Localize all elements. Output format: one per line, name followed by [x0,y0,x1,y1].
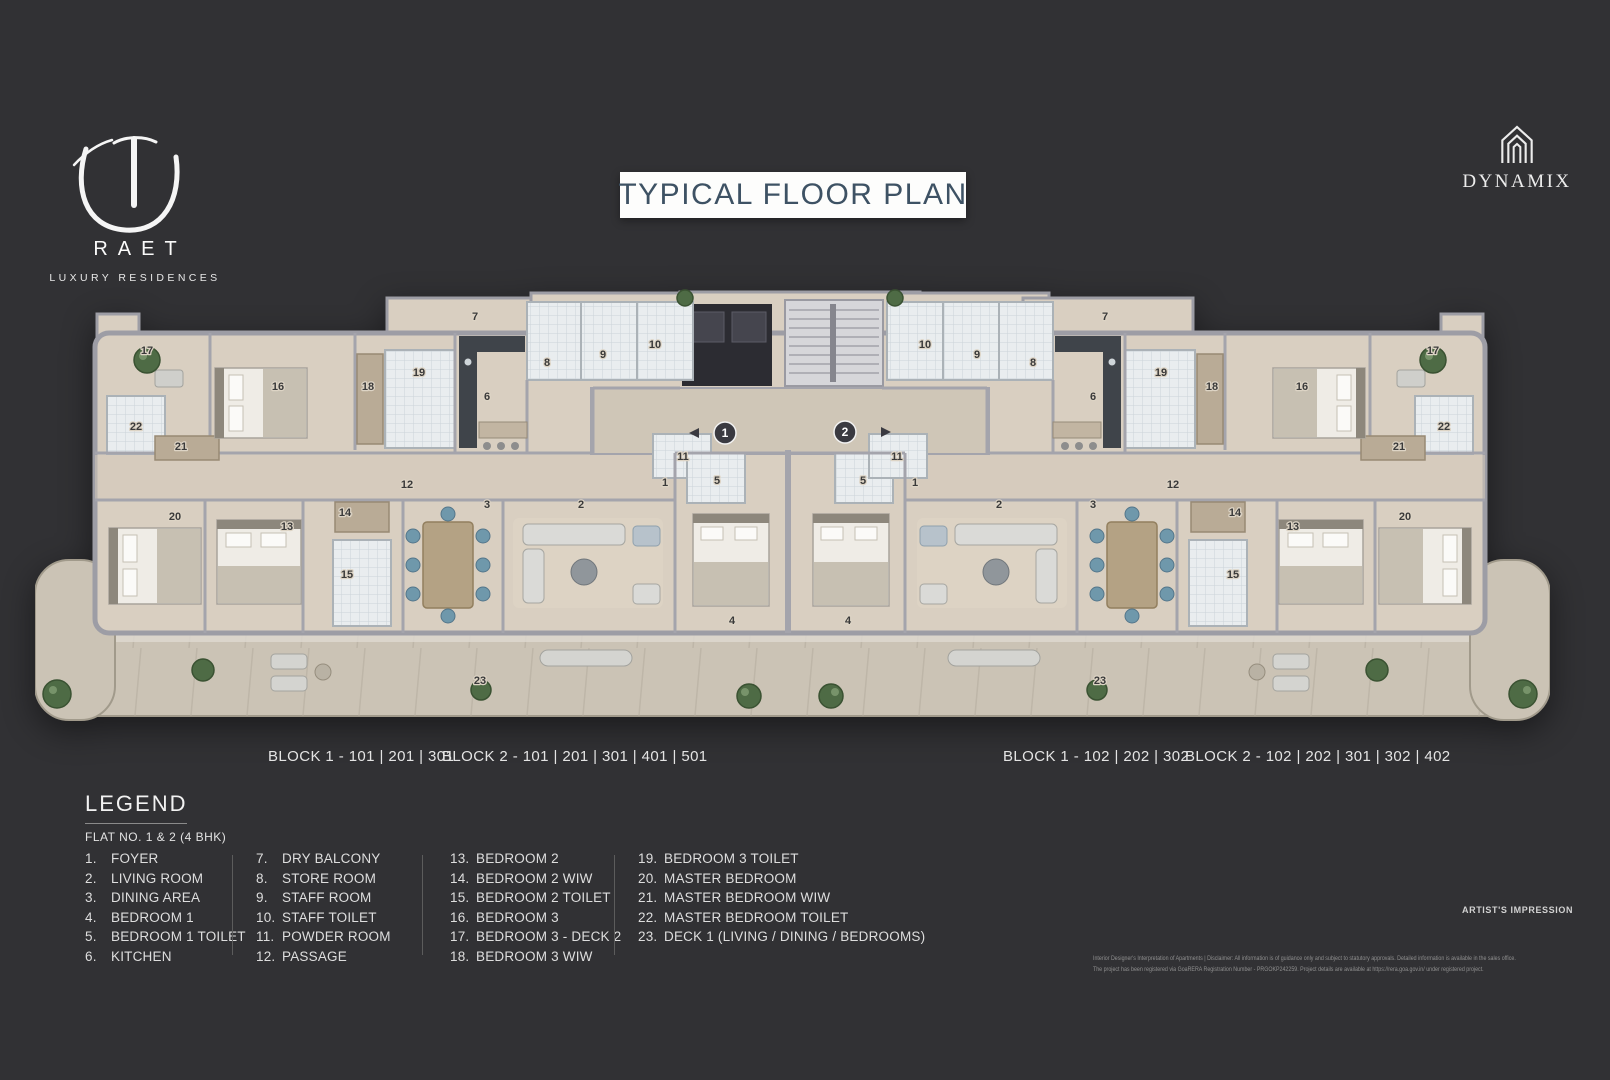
room-number-label: 15 [1227,569,1239,581]
legend-item: 12.PASSAGE [256,947,391,967]
room-number-label: 14 [339,507,352,519]
room-number-label: 20 [1399,511,1411,523]
legend-divider [422,855,423,955]
room-number-label: 22 [1438,421,1450,433]
legend-item: 16.BEDROOM 3 [450,908,621,928]
room-number-label: 12 [401,479,413,491]
legend-item: 18.BEDROOM 3 WIW [450,947,621,967]
block-label-1: BLOCK 1 - 101 | 201 | 301 [268,748,454,765]
room-number-label: 4 [845,615,852,627]
passage-left [95,455,675,499]
legend-item: 13.BEDROOM 2 [450,849,621,869]
room-number-label: 5 [860,475,866,487]
room-number-label: 23 [1094,675,1106,687]
legend-divider [232,855,233,955]
room-number-label: 16 [272,381,284,393]
legend-item: 1.FOYER [85,849,246,869]
room-number-label: 8 [1030,357,1036,369]
unit-2-number: 2 [842,425,849,439]
page-title: TYPICAL FLOOR PLAN [620,172,966,218]
room-number-label: 14 [1229,507,1242,519]
passage-right [905,455,1485,499]
room-number-label: 16 [1296,381,1308,393]
raet-logo-mark [70,135,195,235]
block-label-2: BLOCK 2 - 101 | 201 | 301 | 401 | 501 [442,748,708,765]
room-number-label: 21 [175,441,187,453]
legend-item: 15.BEDROOM 2 TOILET [450,888,621,908]
unit-1-number: 1 [722,426,729,440]
room-number-label: 19 [413,367,425,379]
legend-item: 22.MASTER BEDROOM TOILET [638,908,925,928]
legend-item: 20.MASTER BEDROOM [638,869,925,889]
artists-impression-note: ARTIST'S IMPRESSION [1462,905,1573,915]
legend-column-3: 13.BEDROOM 214.BEDROOM 2 WIW15.BEDROOM 2… [450,849,621,967]
dynamix-logo-icon [1493,118,1541,168]
room-number-label: 11 [891,451,903,463]
room-number-label: 3 [1090,499,1096,511]
room-number-label: 8 [544,357,550,369]
room-number-label: 17 [141,345,153,357]
room-number-label: 9 [974,349,980,361]
legend-item: 3.DINING AREA [85,888,246,908]
room-number-label: 2 [578,499,584,511]
legend-item: 7.DRY BALCONY [256,849,391,869]
block-label-3: BLOCK 1 - 102 | 202 | 302 [1003,748,1189,765]
legend-item: 23.DECK 1 (LIVING / DINING / BEDROOMS) [638,927,925,947]
legend-column-1: 1.FOYER2.LIVING ROOM3.DINING AREA4.BEDRO… [85,849,246,967]
page-title-text: TYPICAL FLOOR PLAN [618,178,967,212]
legend-divider [614,855,615,955]
room-number-label: 1 [662,477,668,489]
brand-name: RAET [40,238,230,261]
room-number-label: 10 [649,339,661,351]
room-number-label: 18 [362,381,374,393]
developer-name: DYNAMIX [1452,171,1582,193]
room-number-label: 3 [484,499,490,511]
room-number-label: 19 [1155,367,1167,379]
room-number-label: 15 [341,569,353,581]
room-number-label: 20 [169,511,181,523]
room-number-label: 1 [912,477,918,489]
legend-subheading: FLAT NO. 1 & 2 (4 BHK) [85,830,226,844]
legend-item: 21.MASTER BEDROOM WIW [638,888,925,908]
room-number-label: 17 [1427,345,1439,357]
legend-item: 17.BEDROOM 3 - DECK 2 [450,927,621,947]
legend-item: 9.STAFF ROOM [256,888,391,908]
legend-item: 8.STORE ROOM [256,869,391,889]
legend-item: 6.KITCHEN [85,947,246,967]
legend-item: 11.POWDER ROOM [256,927,391,947]
legend-item: 19.BEDROOM 3 TOILET [638,849,925,869]
room-number-label: 7 [1102,311,1108,323]
legend-column-4: 19.BEDROOM 3 TOILET20.MASTER BEDROOM21.M… [638,849,925,947]
room-number-label: 6 [1090,391,1096,403]
disclaimer-line-2: The project has been registered via GoaR… [1093,964,1530,975]
room-number-label: 13 [281,521,293,533]
room-number-label: 11 [677,451,689,463]
legend-item: 5.BEDROOM 1 TOILET [85,927,246,947]
room-number-label: 21 [1393,441,1405,453]
dynamix-logo: DYNAMIX [1452,118,1582,193]
room-number-label: 18 [1206,381,1218,393]
room-number-label: 4 [729,615,736,627]
room-number-label: 12 [1167,479,1179,491]
disclaimer-line-1: Interior Designer's Interpretation of Ap… [1093,953,1530,964]
legend-item: 14.BEDROOM 2 WIW [450,869,621,889]
room-number-label: 6 [484,391,490,403]
room-number-label: 22 [130,421,142,433]
room-number-label: 10 [919,339,931,351]
legend-heading: LEGEND [85,791,187,824]
block-label-4: BLOCK 2 - 102 | 202 | 301 | 302 | 402 [1185,748,1451,765]
legend-column-2: 7.DRY BALCONY8.STORE ROOM9.STAFF ROOM10.… [256,849,391,967]
brand-tagline: LUXURY RESIDENCES [40,272,230,284]
room-number-label: 7 [472,311,478,323]
floor-plan-poster: RAET LUXURY RESIDENCES TYPICAL FLOOR PLA… [0,0,1610,1080]
room-number-label: 9 [600,349,606,361]
legend-item: 2.LIVING ROOM [85,869,246,889]
legend-item: 4.BEDROOM 1 [85,908,246,928]
room-number-label: 23 [474,675,486,687]
room-number-label: 5 [714,475,720,487]
room-number-label: 2 [996,499,1002,511]
room-number-label: 13 [1287,521,1299,533]
floor-plan-rendering: 1 2 171618197689101122211220131415321542… [35,288,1550,733]
disclaimer: Interior Designer's Interpretation of Ap… [1093,953,1530,975]
legend-item: 10.STAFF TOILET [256,908,391,928]
